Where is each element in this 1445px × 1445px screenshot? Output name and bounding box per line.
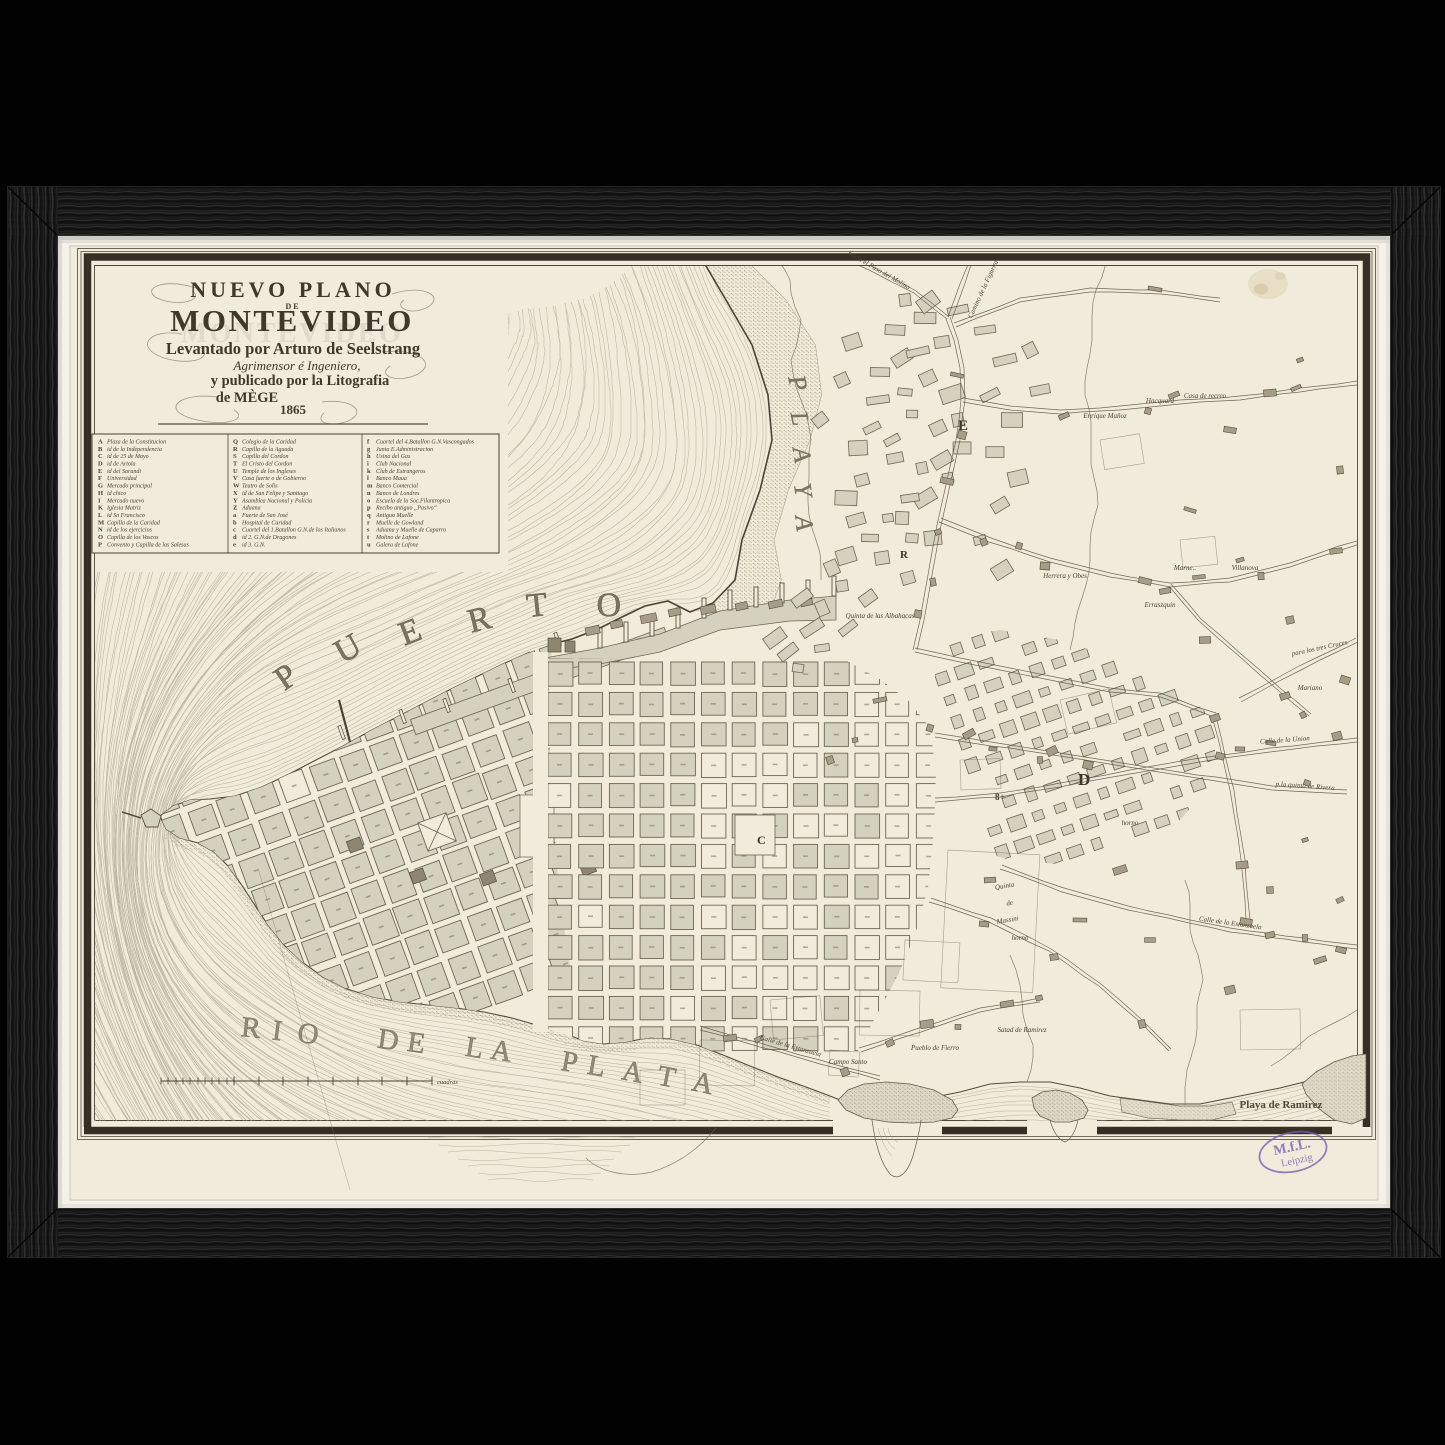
- svg-text:Usina del Gas: Usina del Gas: [376, 454, 411, 460]
- svg-text:Galera de Lafone: Galera de Lafone: [376, 541, 419, 548]
- svg-text:id de San Felipe y Santiago: id de San Felipe y Santiago: [242, 491, 308, 497]
- svg-text:Quinta de las Albahacas: Quinta de las Albahacas: [846, 612, 915, 620]
- svg-text:id de Artola: id de Artola: [107, 462, 136, 468]
- svg-text:Herrera y Obes: Herrera y Obes: [1042, 572, 1087, 580]
- svg-text:id chico: id chico: [107, 491, 126, 497]
- svg-text:R: R: [240, 1011, 263, 1045]
- svg-text:P: P: [98, 541, 102, 548]
- svg-text:Antiguo Muelle: Antiguo Muelle: [375, 513, 413, 519]
- svg-text:E: E: [98, 468, 102, 475]
- svg-text:X: X: [233, 490, 238, 497]
- svg-text:Molino de Lafone: Molino de Lafone: [375, 534, 419, 541]
- svg-text:Mariano: Mariano: [1297, 684, 1323, 692]
- svg-text:Villanova: Villanova: [1232, 564, 1259, 572]
- svg-text:Junta E.Administracion: Junta E.Administracion: [376, 447, 433, 453]
- svg-text:id 2. G.N.de Dragones: id 2. G.N.de Dragones: [242, 535, 297, 541]
- svg-text:d: d: [233, 534, 237, 541]
- svg-text:Fuerte de San José: Fuerte de San José: [241, 513, 288, 519]
- svg-text:C: C: [98, 453, 103, 460]
- svg-text:K: K: [98, 505, 103, 512]
- svg-text:Universidad: Universidad: [107, 476, 138, 482]
- svg-text:Enrique Muñoz: Enrique Muñoz: [1082, 412, 1127, 420]
- svg-text:id de 25 de Mayo: id de 25 de Mayo: [107, 454, 149, 460]
- svg-text:Banco Comercial: Banco Comercial: [376, 484, 418, 490]
- svg-text:Erraszquin: Erraszquin: [1143, 601, 1176, 609]
- svg-text:o: o: [367, 497, 370, 504]
- svg-text:L: L: [98, 512, 103, 519]
- svg-text:Casa fuerte o de Gobierno: Casa fuerte o de Gobierno: [242, 475, 306, 482]
- svg-text:Temple de los Ingleses: Temple de los Ingleses: [242, 469, 297, 475]
- svg-text:T: T: [233, 461, 238, 468]
- svg-text:id de la Independencia: id de la Independencia: [107, 447, 162, 453]
- svg-text:r: r: [367, 519, 370, 526]
- svg-text:id de los ejercicios: id de los ejercicios: [107, 528, 153, 534]
- svg-text:T: T: [525, 586, 550, 625]
- svg-text:Satad de Ramirez: Satad de Ramirez: [997, 1026, 1046, 1034]
- svg-text:Plaza de la Constitucion: Plaza de la Constitucion: [106, 440, 166, 446]
- svg-text:id 3. G.N.: id 3. G.N.: [242, 542, 266, 548]
- svg-text:A: A: [98, 439, 103, 446]
- svg-text:l: l: [367, 475, 369, 482]
- svg-text:de MÈGE: de MÈGE: [216, 389, 278, 406]
- svg-text:Asamblea Nacional y Policia: Asamblea Nacional y Policia: [241, 498, 312, 504]
- svg-text:e: e: [233, 541, 236, 548]
- svg-text:R: R: [900, 549, 909, 561]
- svg-text:Cuartel del 1.Batallon G.N.de: Cuartel del 1.Batallon G.N.de los Italia…: [242, 528, 346, 534]
- svg-text:Convento y Capilla de las Sale: Convento y Capilla de las Salesas: [107, 542, 189, 548]
- svg-text:H: H: [98, 490, 103, 497]
- svg-text:S: S: [233, 453, 237, 460]
- svg-text:m: m: [367, 483, 373, 490]
- svg-text:Muelle de Gowland: Muelle de Gowland: [375, 520, 424, 526]
- svg-text:Z: Z: [233, 505, 237, 512]
- svg-text:Aduana: Aduana: [241, 506, 261, 512]
- svg-text:Club Nacional: Club Nacional: [376, 462, 412, 468]
- svg-text:u: u: [367, 541, 371, 548]
- svg-text:O: O: [98, 534, 103, 541]
- svg-text:q: q: [367, 512, 371, 519]
- svg-text:y publicado por la Litografia: y publicado por la Litografia: [211, 373, 390, 389]
- svg-text:id Sn Francisco: id Sn Francisco: [107, 513, 145, 519]
- svg-text:El Cristo del Cordon: El Cristo del Cordon: [241, 462, 292, 468]
- svg-text:id del Sarandi: id del Sarandi: [107, 469, 141, 475]
- svg-text:Hacquard: Hacquard: [1145, 397, 1175, 405]
- svg-text:Banco de Londres: Banco de Londres: [376, 491, 420, 497]
- svg-text:Agrimensor é Ingeniero,: Agrimensor é Ingeniero,: [233, 358, 361, 373]
- svg-text:Playa de Ramirez: Playa de Ramirez: [1240, 1099, 1323, 1111]
- svg-text:Capilla de la Caridad: Capilla de la Caridad: [107, 520, 161, 526]
- svg-text:n: n: [367, 490, 371, 497]
- svg-text:horno: horno: [1012, 934, 1029, 942]
- svg-text:h: h: [367, 453, 371, 460]
- svg-text:Capilla de la Aguada: Capilla de la Aguada: [242, 447, 293, 453]
- svg-text:Hospital de Caridad: Hospital de Caridad: [241, 520, 292, 526]
- svg-text:F: F: [98, 475, 102, 482]
- svg-text:Recibo antiguo „Pasivo“: Recibo antiguo „Pasivo“: [375, 505, 438, 512]
- svg-text:b: b: [233, 519, 237, 526]
- svg-text:de: de: [1006, 899, 1014, 908]
- svg-text:Y: Y: [233, 497, 238, 504]
- svg-text:1865: 1865: [280, 402, 307, 417]
- svg-text:V: V: [233, 475, 238, 482]
- svg-text:Casa de recreo: Casa de recreo: [1184, 392, 1227, 400]
- svg-text:D: D: [98, 461, 103, 468]
- svg-text:B: B: [98, 446, 103, 453]
- svg-text:W: W: [233, 483, 240, 490]
- svg-text:D: D: [376, 1023, 401, 1058]
- svg-text:R: R: [233, 446, 238, 453]
- svg-text:Iglesia Matriz: Iglesia Matriz: [106, 506, 141, 512]
- svg-text:Cuartel del 4.Batallon G.N.Vas: Cuartel del 4.Batallon G.N.Vascongados: [376, 439, 475, 446]
- svg-text:Capilla de los Vascos: Capilla de los Vascos: [107, 535, 159, 541]
- svg-text:Capilla del Cordon: Capilla del Cordon: [242, 454, 288, 460]
- svg-text:Mercado nuevo: Mercado nuevo: [106, 498, 144, 504]
- svg-text:Aduana y Muelle de Caparro: Aduana y Muelle de Caparro: [375, 528, 446, 534]
- svg-text:Q: Q: [233, 439, 238, 446]
- svg-text:Club de Estrangeros: Club de Estrangeros: [376, 469, 426, 475]
- svg-text:O: O: [296, 1017, 321, 1051]
- svg-text:Mercado principal: Mercado principal: [106, 484, 152, 490]
- svg-text:Banco Maua: Banco Maua: [376, 476, 407, 482]
- svg-text:k: k: [367, 468, 371, 475]
- svg-text:Colegio de la Caridad: Colegio de la Caridad: [242, 440, 297, 446]
- svg-text:c: c: [233, 527, 236, 534]
- svg-text:cuadras: cuadras: [437, 1079, 458, 1086]
- svg-text:p: p: [367, 505, 371, 512]
- svg-text:horno: horno: [1122, 819, 1139, 827]
- svg-text:Escuela de la Soc.Filantropica: Escuela de la Soc.Filantropica: [375, 498, 450, 504]
- svg-text:O: O: [596, 587, 621, 624]
- svg-text:Pueblo de Fierro: Pueblo de Fierro: [910, 1044, 959, 1052]
- svg-text:Teatro de Solis: Teatro de Solis: [242, 484, 278, 490]
- svg-text:NUEVO PLANO: NUEVO PLANO: [190, 277, 396, 302]
- svg-text:U: U: [233, 468, 238, 475]
- svg-text:i: i: [367, 461, 369, 468]
- svg-text:C: C: [757, 833, 766, 847]
- svg-text:Marne..: Marne..: [1173, 564, 1196, 572]
- svg-text:N: N: [98, 527, 103, 534]
- svg-text:Campo Santo: Campo Santo: [829, 1058, 867, 1066]
- svg-text:G: G: [98, 483, 103, 490]
- svg-text:M: M: [98, 519, 104, 526]
